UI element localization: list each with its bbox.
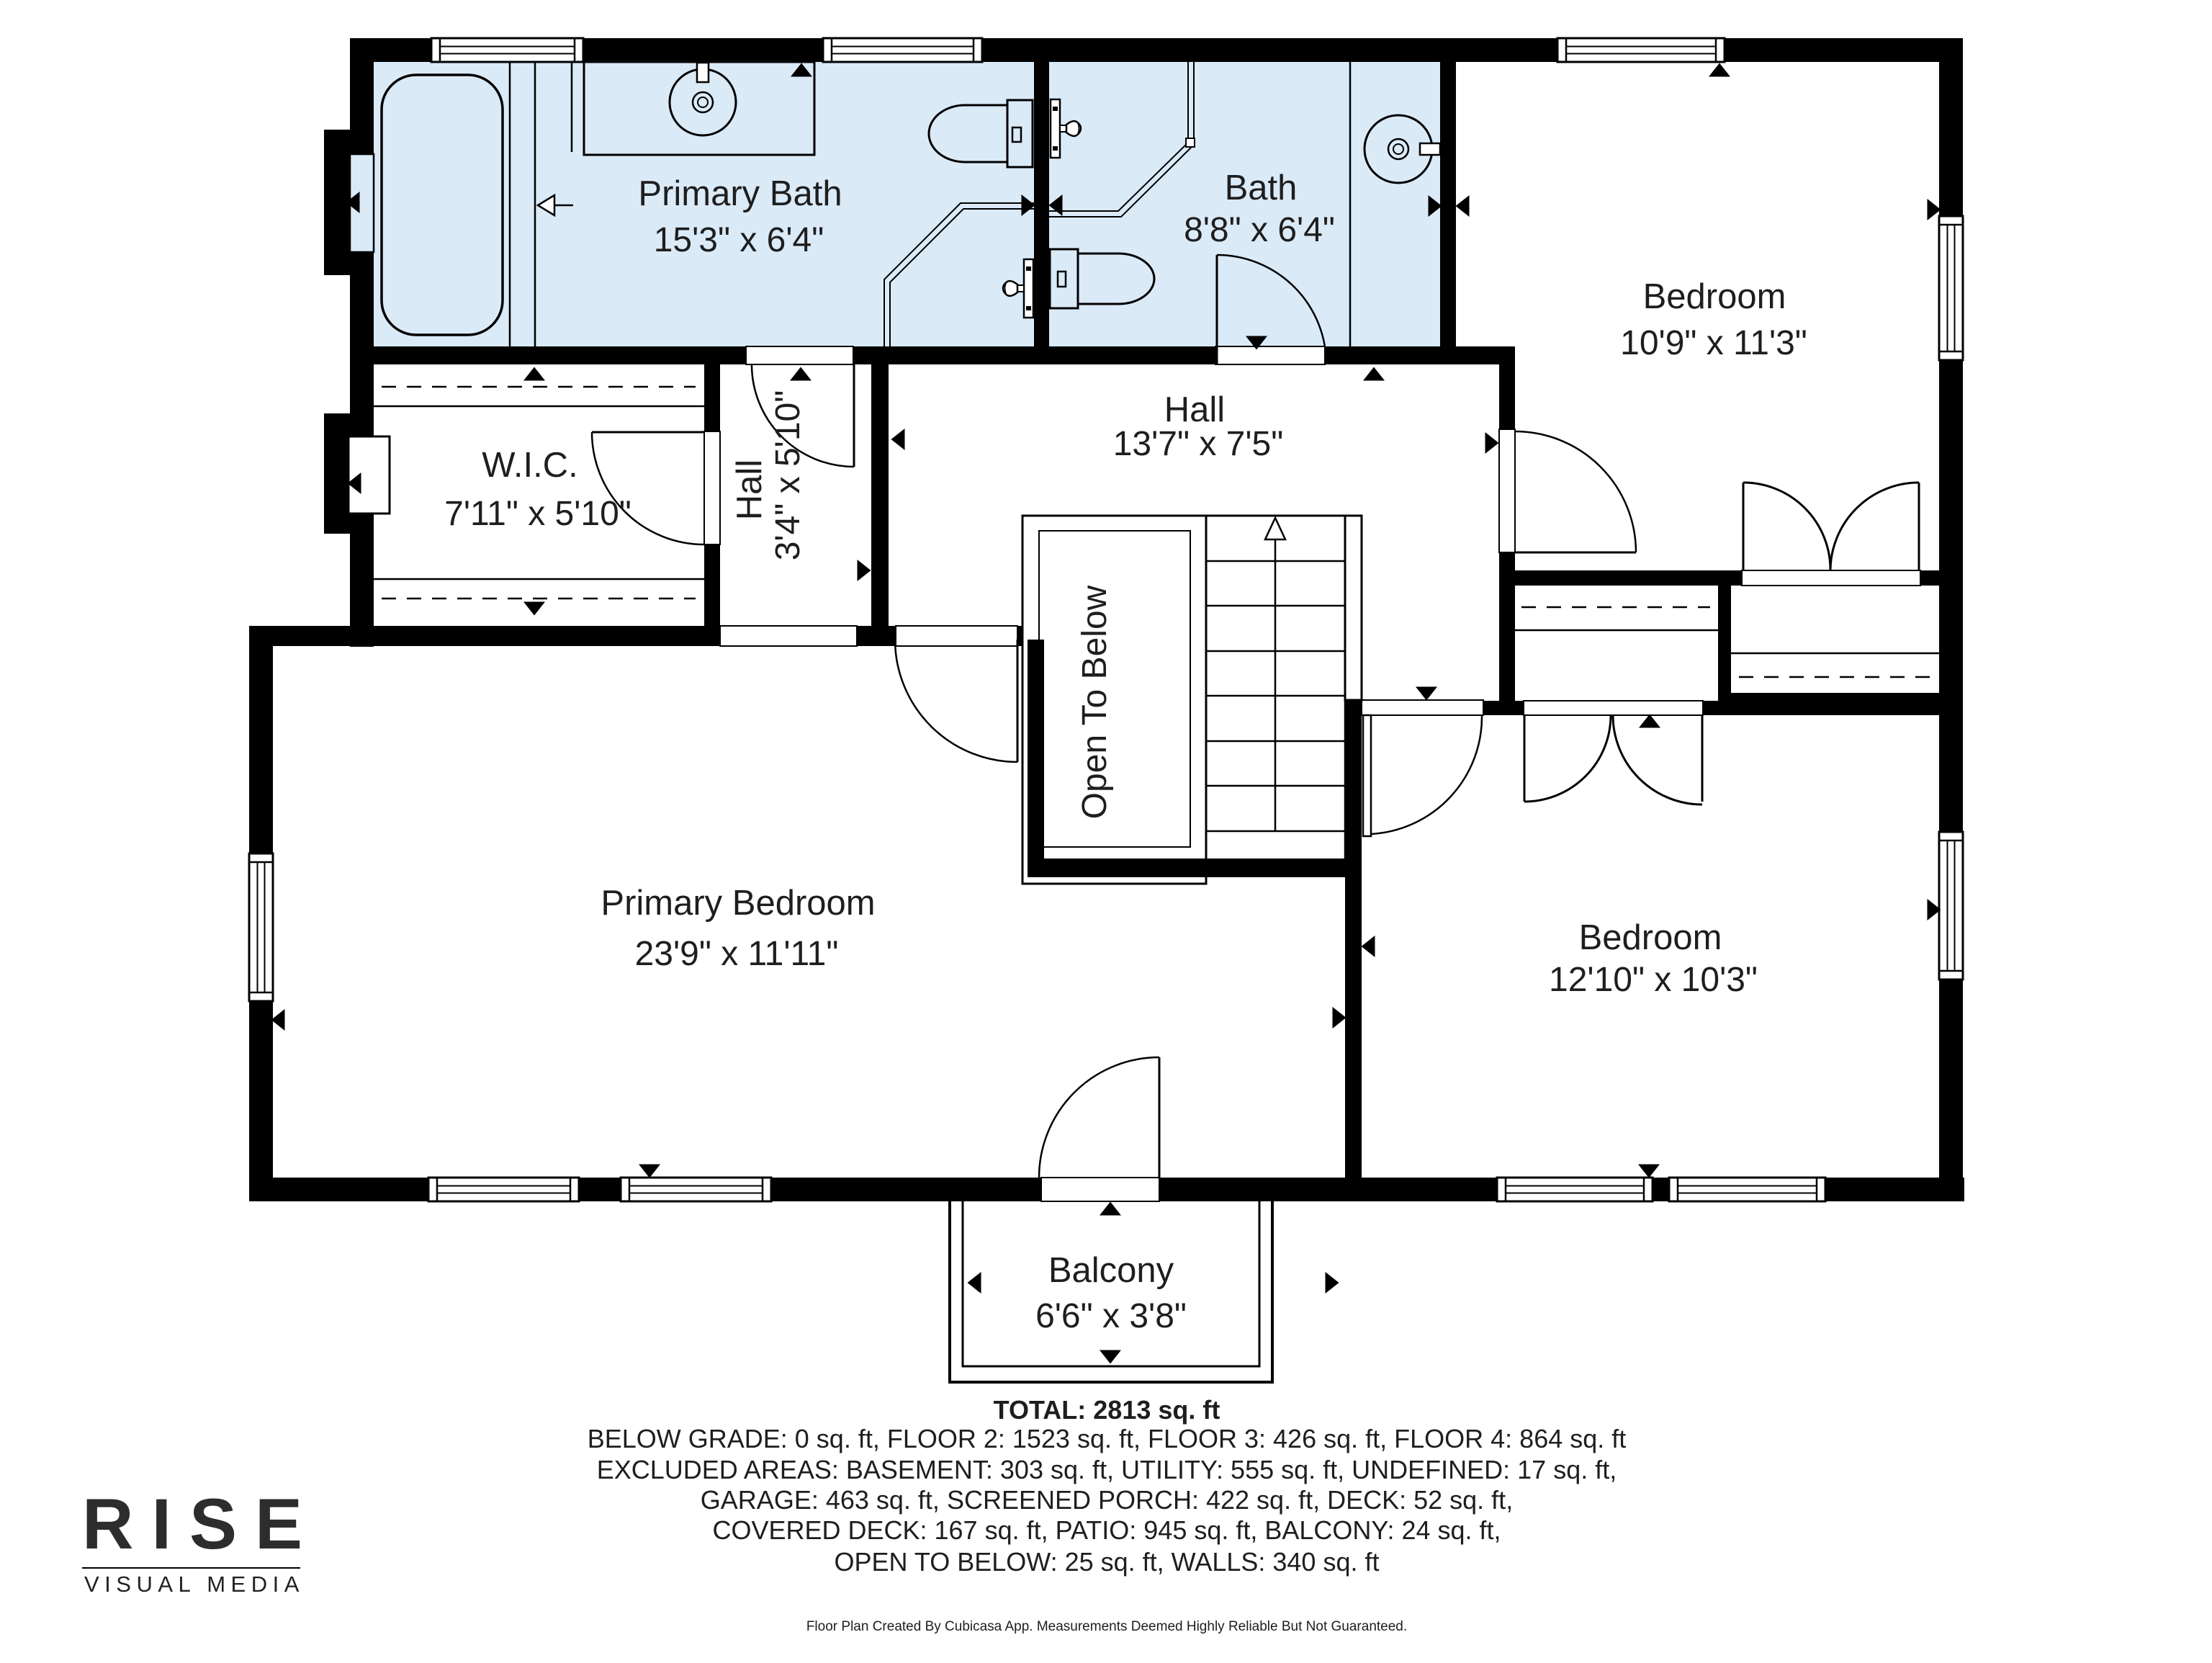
svg-text:GARAGE: 463 sq. ft, SCREENED P: GARAGE: 463 sq. ft, SCREENED PORCH: 422 … (701, 1485, 1513, 1515)
svg-text:6'6" x 3'8": 6'6" x 3'8" (1035, 1297, 1187, 1335)
svg-text:13'7" x 7'5": 13'7" x 7'5" (1113, 425, 1284, 463)
svg-text:RISE: RISE (82, 1484, 320, 1564)
svg-text:Balcony: Balcony (1048, 1251, 1174, 1290)
svg-text:OPEN TO BELOW: 25 sq. ft, WALL: OPEN TO BELOW: 25 sq. ft, WALLS: 340 sq.… (835, 1547, 1380, 1577)
svg-text:Hall: Hall (1164, 390, 1225, 429)
svg-text:COVERED DECK: 167 sq. ft, PATI: COVERED DECK: 167 sq. ft, PATIO: 945 sq.… (712, 1515, 1501, 1545)
svg-text:Hall: Hall (730, 460, 769, 520)
svg-text:VISUAL MEDIA: VISUAL MEDIA (84, 1572, 305, 1597)
svg-text:3'4" x 5'10": 3'4" x 5'10" (769, 390, 807, 561)
svg-text:Open To Below: Open To Below (1076, 585, 1114, 819)
svg-text:8'8" x 6'4": 8'8" x 6'4" (1184, 211, 1335, 249)
svg-text:TOTAL: 2813 sq. ft: TOTAL: 2813 sq. ft (994, 1395, 1220, 1425)
svg-text:23'9" x 11'11": 23'9" x 11'11" (635, 935, 839, 973)
svg-text:15'3" x 6'4": 15'3" x 6'4" (654, 221, 824, 259)
svg-text:Primary Bedroom: Primary Bedroom (601, 884, 875, 923)
svg-text:Bath: Bath (1225, 169, 1298, 207)
svg-text:Bedroom: Bedroom (1579, 918, 1722, 957)
svg-text:Floor Plan Created By Cubicasa: Floor Plan Created By Cubicasa App. Meas… (806, 1619, 1407, 1634)
svg-text:10'9" x 11'3": 10'9" x 11'3" (1620, 324, 1807, 362)
svg-text:12'10" x 10'3": 12'10" x 10'3" (1549, 961, 1758, 999)
svg-text:BELOW GRADE: 0 sq. ft, FLOOR 2: BELOW GRADE: 0 sq. ft, FLOOR 2: 1523 sq.… (588, 1424, 1627, 1453)
svg-text:Primary Bath: Primary Bath (638, 174, 842, 213)
svg-text:W.I.C.: W.I.C. (482, 446, 577, 485)
svg-text:EXCLUDED AREAS: BASEMENT: 303: EXCLUDED AREAS: BASEMENT: 303 sq. ft, UT… (597, 1455, 1617, 1484)
svg-text:7'11" x 5'10": 7'11" x 5'10" (444, 495, 631, 533)
svg-text:Bedroom: Bedroom (1643, 277, 1786, 316)
